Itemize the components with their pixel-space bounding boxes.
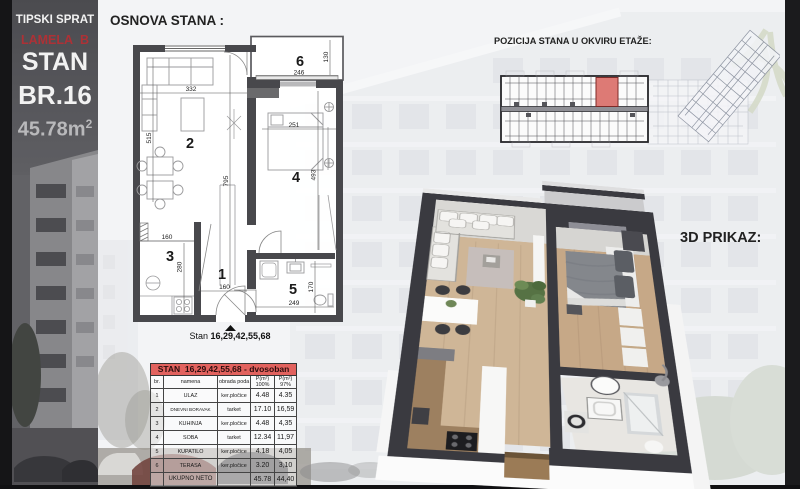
svg-text:280: 280 <box>177 261 184 272</box>
svg-text:6: 6 <box>296 54 304 70</box>
svg-text:493: 493 <box>311 169 318 180</box>
svg-text:2: 2 <box>186 136 194 152</box>
svg-text:249: 249 <box>289 300 300 307</box>
svg-text:251: 251 <box>289 122 300 129</box>
svg-text:3: 3 <box>166 249 174 265</box>
svg-text:160: 160 <box>162 234 173 241</box>
svg-text:1: 1 <box>218 267 226 283</box>
svg-text:246: 246 <box>294 70 305 77</box>
svg-text:170: 170 <box>308 281 315 292</box>
svg-text:4: 4 <box>292 170 300 186</box>
svg-text:515: 515 <box>146 132 153 143</box>
svg-text:130: 130 <box>323 51 330 62</box>
svg-text:160: 160 <box>219 284 230 291</box>
svg-text:795: 795 <box>223 175 230 186</box>
svg-text:332: 332 <box>186 86 197 93</box>
svg-text:5: 5 <box>289 282 297 298</box>
